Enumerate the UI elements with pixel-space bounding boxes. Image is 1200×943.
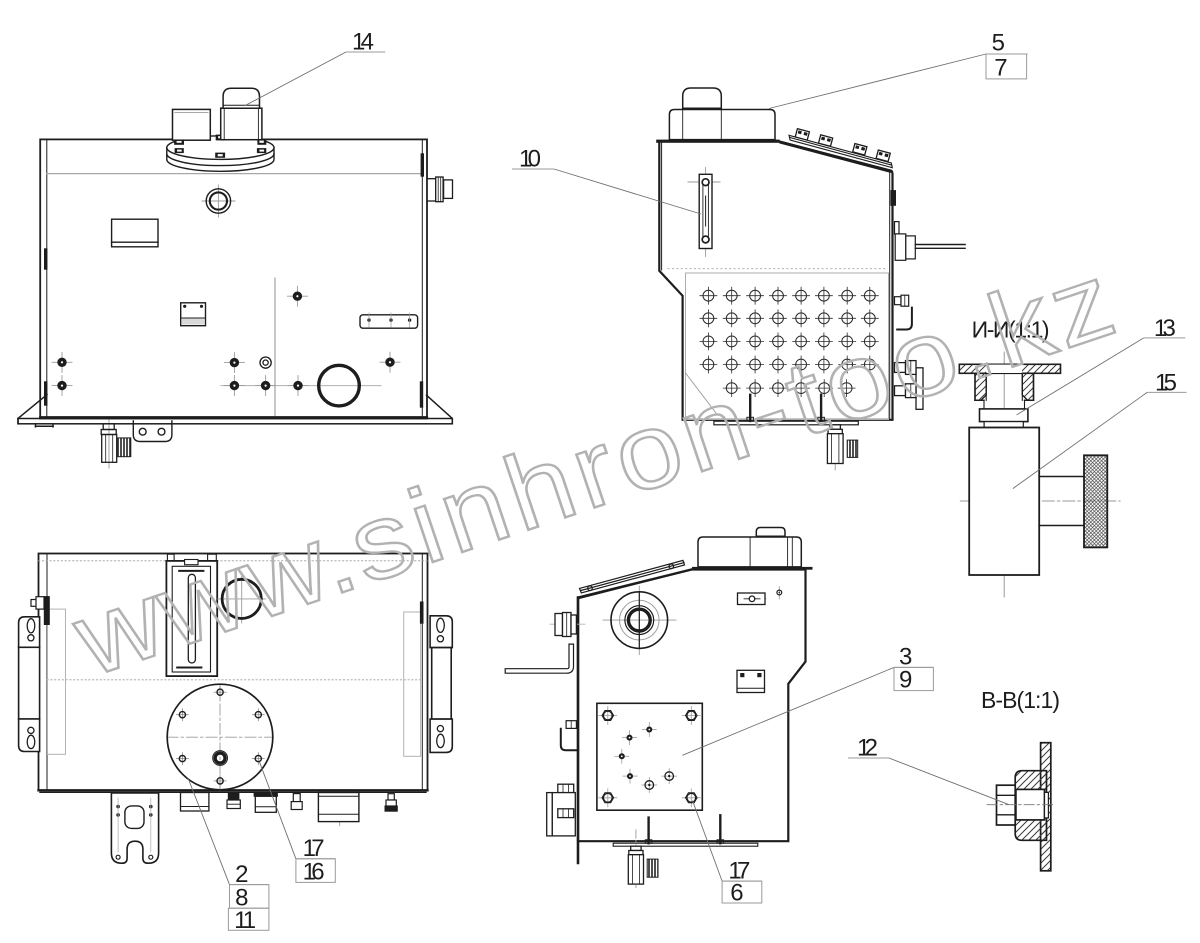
svg-text:10: 10 — [519, 146, 541, 173]
svg-text:B-B(1:1): B-B(1:1) — [981, 687, 1060, 713]
svg-text:7: 7 — [994, 55, 1007, 82]
svg-text:9: 9 — [899, 667, 912, 694]
svg-text:15: 15 — [1155, 370, 1177, 397]
svg-text:11: 11 — [234, 907, 256, 934]
svg-text:6: 6 — [730, 880, 743, 907]
svg-text:12: 12 — [857, 735, 878, 762]
svg-text:16: 16 — [303, 859, 325, 886]
svg-text:14: 14 — [352, 29, 374, 56]
svg-text:5: 5 — [992, 30, 1005, 57]
svg-text:13: 13 — [1154, 315, 1176, 342]
